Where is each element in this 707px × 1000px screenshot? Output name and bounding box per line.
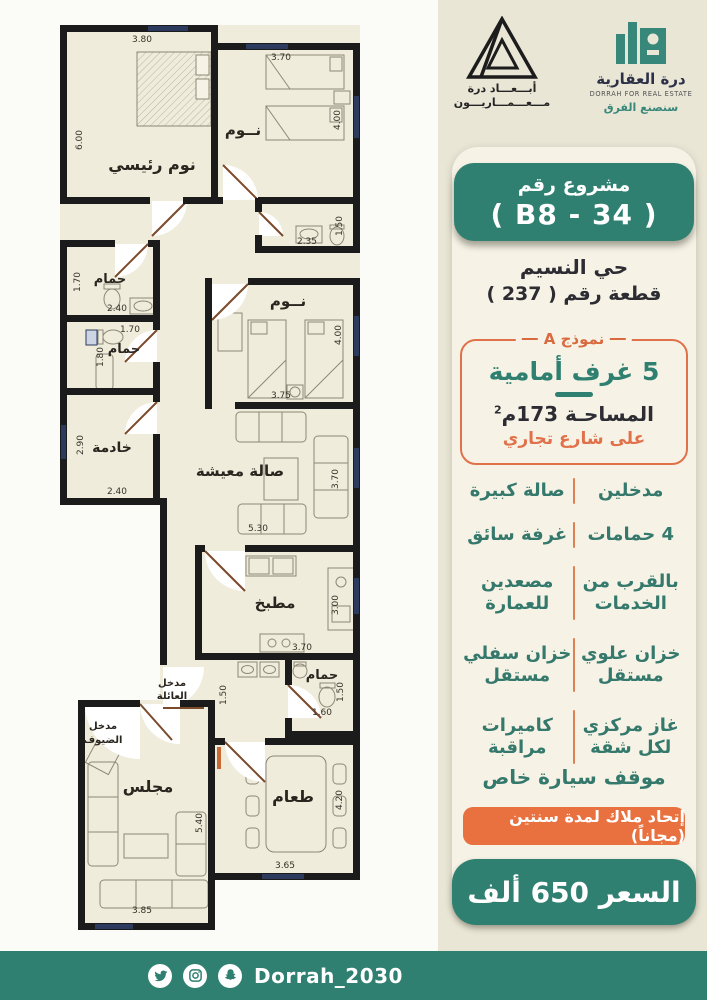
model-rooms-text: 5 غرف أمامية [462, 357, 686, 386]
model-label: نموذج A [516, 330, 632, 348]
dim-label: 3.75 [271, 391, 291, 401]
feature-row: 4 حمامات غرفة سائق [452, 513, 696, 557]
area-superscript: 2 [494, 403, 502, 416]
room-label-family-entry-2: العائلة [157, 691, 187, 702]
snapchat-icon[interactable] [218, 964, 242, 988]
dim-label: 3.65 [275, 861, 295, 871]
dim-label: 1.70 [73, 272, 83, 292]
feature-item: خزان سفلي مستقل [462, 643, 573, 688]
feature-row: بالقرب من الخدمات مصعدين للعمارة [452, 557, 696, 629]
dim-label: 1.50 [335, 216, 345, 236]
project-badge-title: مشروع رقم [454, 174, 694, 196]
dorrah-logo-name-en: DORRAH FOR REAL ESTATE [580, 90, 702, 98]
dorrah-logo: درة العقارية DORRAH FOR REAL ESTATE سنصن… [580, 22, 702, 114]
dim-label: 3.70 [331, 469, 341, 489]
feature-item: غرفة سائق [462, 524, 573, 547]
feature-item: بالقرب من الخدمات [576, 571, 687, 616]
feature-item: مصعدين للعمارة [462, 571, 573, 616]
room-label-bedroom-top: نــوم [225, 121, 261, 139]
dorrah-logo-name-ar: درة العقارية [580, 70, 702, 88]
poster: { "header": { "abaad_logo": { "line1": "… [0, 0, 707, 1000]
dim-label: 3.00 [331, 595, 341, 615]
dim-label: 2.40 [107, 304, 127, 314]
dim-label: 2.90 [76, 435, 86, 455]
dim-label: 4.00 [333, 110, 343, 130]
room-label-maid: خادمة [92, 440, 132, 456]
room-label-bedroom-mid: نــوم [270, 292, 306, 310]
room-label-dining: طعام [272, 787, 314, 806]
price-badge: السعر 650 ألف [452, 859, 696, 925]
dim-label: 3.70 [292, 643, 312, 653]
feature-item: كاميرات مراقبة [462, 715, 573, 760]
dim-label: 3.85 [132, 906, 152, 916]
feature-item: خزان علوي مستقل [576, 643, 687, 688]
features-list: مدخلين صالة كبيرة 4 حمامات غرفة سائق بال… [452, 469, 696, 773]
footer-bar: Dorrah_2030 [0, 951, 707, 1000]
room-label-master: نوم رئيسي [108, 155, 196, 175]
dim-label: 3.70 [271, 53, 291, 63]
area-value: المساحـة 173م [502, 402, 654, 426]
feature-row: غاز مركزي لكل شقة كاميرات مراقبة [452, 701, 696, 773]
dorrah-mark-icon [614, 22, 668, 68]
model-street-text: على شارع تجاري [462, 429, 686, 449]
dim-label: 1.50 [336, 682, 346, 702]
dim-label: 4.20 [335, 790, 345, 810]
feature-item: مدخلين [576, 480, 687, 503]
project-badge-number: ( B8 - 34 ) [454, 198, 694, 231]
model-box: نموذج A 5 غرف أمامية المساحـة 173م2 على … [460, 339, 688, 465]
dim-label: 1.60 [312, 708, 332, 718]
feature-divider [573, 710, 576, 764]
room-label-majlis: مجلس [123, 777, 174, 796]
floor-plan: نوم رئيسي نــوم نــوم حمام حمام حمام خاد… [0, 0, 445, 950]
feature-item: 4 حمامات [576, 524, 687, 547]
feature-divider [573, 566, 576, 620]
room-label-family-entry-1: مدخل [158, 678, 186, 689]
feature-item: صالة كبيرة [462, 480, 573, 503]
twitter-icon[interactable] [148, 964, 172, 988]
dim-label: 4.00 [334, 325, 344, 345]
project-number-badge: مشروع رقم ( B8 - 34 ) [454, 163, 694, 241]
info-card: مشروع رقم ( B8 - 34 ) حي النسيم قطعة رقم… [452, 147, 696, 925]
dim-label: 2.40 [107, 487, 127, 497]
dorrah-logo-tagline: سنصنع الفرق [580, 101, 702, 114]
feature-divider [573, 478, 576, 504]
model-area-text: المساحـة 173م2 [462, 402, 686, 426]
room-label-bath3: حمام [306, 668, 339, 683]
parking-text: موقف سيارة خاص [452, 765, 696, 789]
dim-label: 1.50 [219, 685, 229, 705]
feature-row: خزان علوي مستقل خزان سفلي مستقل [452, 629, 696, 701]
room-label-guest-entry-2: الضيوف [83, 735, 122, 746]
plot-number-text: قطعة رقم ( 237 ) [452, 283, 696, 305]
abaad-logo: أبـــعـــاد درة مـــعـــمـــاريـــون [448, 16, 556, 109]
social-handle[interactable]: Dorrah_2030 [254, 964, 403, 988]
room-label-bath1: حمام [94, 272, 127, 287]
room-label-kitchen: مطبخ [255, 594, 296, 612]
hoa-badge: إتحاد ملاك لمدة سنتين (مجاناً) [463, 807, 685, 845]
feature-divider [573, 638, 576, 692]
abaad-triangle-icon [465, 16, 539, 80]
instagram-icon[interactable] [183, 964, 207, 988]
feature-divider [573, 522, 576, 548]
district-text: حي النسيم [452, 255, 696, 279]
dim-label: 6.00 [75, 130, 85, 150]
abaad-logo-line2: مـــعـــمـــاريـــون [448, 96, 556, 109]
room-label-guest-entry-1: مدخل [89, 721, 117, 732]
dim-label: 5.30 [248, 524, 268, 534]
dim-label: 3.80 [132, 35, 152, 45]
room-label-bath2: حمام [108, 342, 141, 357]
feature-row: مدخلين صالة كبيرة [452, 469, 696, 513]
dim-label: 5.40 [195, 813, 205, 833]
abaad-logo-line1: أبـــعـــاد درة [448, 82, 556, 95]
room-label-living: صالة معيشة [196, 462, 284, 480]
feature-item: غاز مركزي لكل شقة [576, 715, 687, 760]
dim-label: 1.80 [96, 347, 106, 367]
dim-label: 2.35 [297, 237, 317, 247]
dim-label: 1.70 [120, 325, 140, 335]
model-divider [555, 392, 593, 397]
